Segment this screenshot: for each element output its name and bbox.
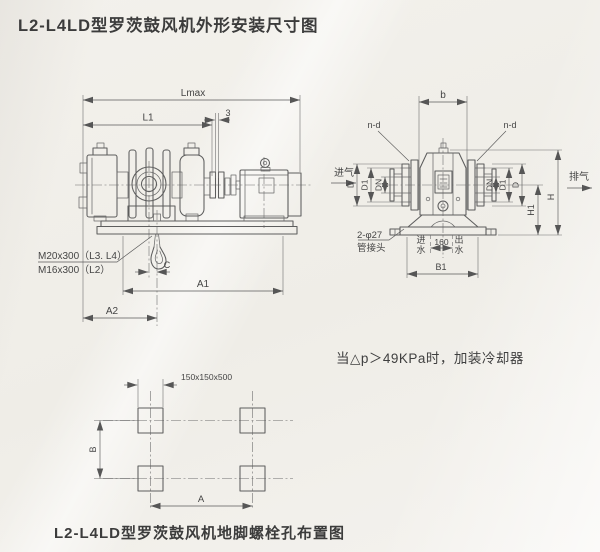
dim-label-b: b [440, 90, 446, 101]
dim-label-d-left: D [346, 182, 356, 188]
side-view-centerlines [75, 157, 313, 326]
blower-side-view [79, 143, 240, 221]
inlet-label: 进气 [334, 166, 354, 179]
water-in-char2: 水 [416, 244, 425, 255]
technical-drawing-canvas: Lmax L1 3 C A1 A2 M20x300（ [0, 0, 600, 552]
cooler-note: 当△p＞49KPa时，加装冷却器 [336, 347, 524, 367]
dim-label-b1: B1 [435, 262, 446, 272]
bolt-layout-dimensions: 150x150x500 B A [88, 372, 253, 506]
base-plate-side-view [97, 221, 297, 234]
front-view: b n-d n-d 进气 排气 [331, 90, 592, 278]
bolt-layout: 150x150x500 B A [88, 372, 293, 509]
anchor-bolt-spec-l3-l4: M20x300（L3. L4） [38, 250, 127, 262]
pipe-joint-qty-label: 2-φ27 [357, 230, 382, 241]
dim-label-gap3: 3 [225, 108, 230, 118]
dim-label-layout-a: A [198, 494, 205, 505]
dim-label-dn-right: DN [485, 179, 495, 191]
pipe-joint-label: 管接头 [357, 242, 386, 254]
dim-label-dn-left: DN [374, 179, 384, 191]
dim-label-nd-left: n-d [367, 120, 380, 130]
anchor-bolt-spec-l2: M16x300（L2） [38, 264, 110, 276]
dim-label-c: C [164, 260, 171, 270]
outlet-label: 排气 [569, 170, 589, 183]
dim-label-layout-b: B [88, 446, 98, 452]
dim-label-h1: H1 [526, 204, 536, 216]
dim-label-l1: L1 [142, 113, 154, 124]
dim-label-h: H [546, 194, 556, 201]
water-out-char1: 出 [454, 234, 463, 245]
bolt-layout-caption: L2-L4LD型罗茨鼓风机地脚螺栓孔布置图 [54, 522, 345, 543]
side-view: Lmax L1 3 C A1 A2 M20x300（ [38, 88, 313, 326]
water-in-char1: 进 [416, 235, 425, 245]
dim-label-d1-left: D1 [360, 179, 370, 190]
dim-label-pocket: 150x150x500 [181, 372, 232, 382]
dim-label-nd-right: n-d [503, 120, 516, 130]
dim-label-lmax: Lmax [181, 88, 205, 99]
dim-label-a2: A2 [106, 306, 119, 317]
water-out-char2: 水 [454, 244, 463, 255]
dim-label-160: 160 [434, 237, 448, 247]
front-view-dimensions: b n-d n-d 进气 排气 [331, 90, 592, 278]
dim-label-a1: A1 [197, 279, 210, 290]
scanned-drawing-page: L2-L4LD型罗茨鼓风机外形安装尺寸图 [0, 0, 600, 552]
motor-side-view [240, 159, 301, 222]
blower-front-view [390, 143, 496, 215]
side-view-dimensions: Lmax L1 3 C A1 A2 M20x300（ [38, 88, 300, 322]
